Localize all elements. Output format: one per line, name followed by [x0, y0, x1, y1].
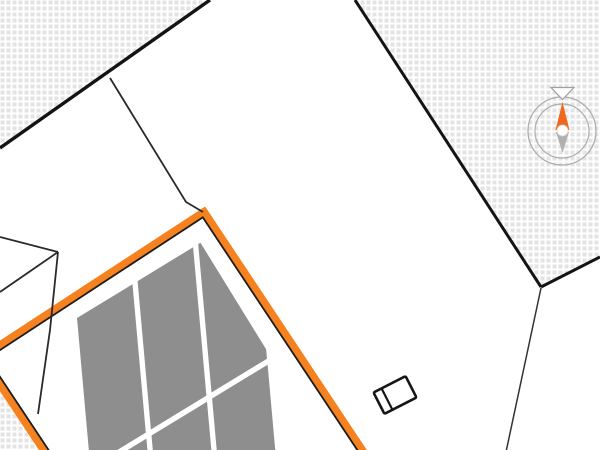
map-canvas — [0, 0, 600, 450]
compass-hub — [557, 125, 568, 136]
parcel-map-svg — [0, 0, 600, 450]
